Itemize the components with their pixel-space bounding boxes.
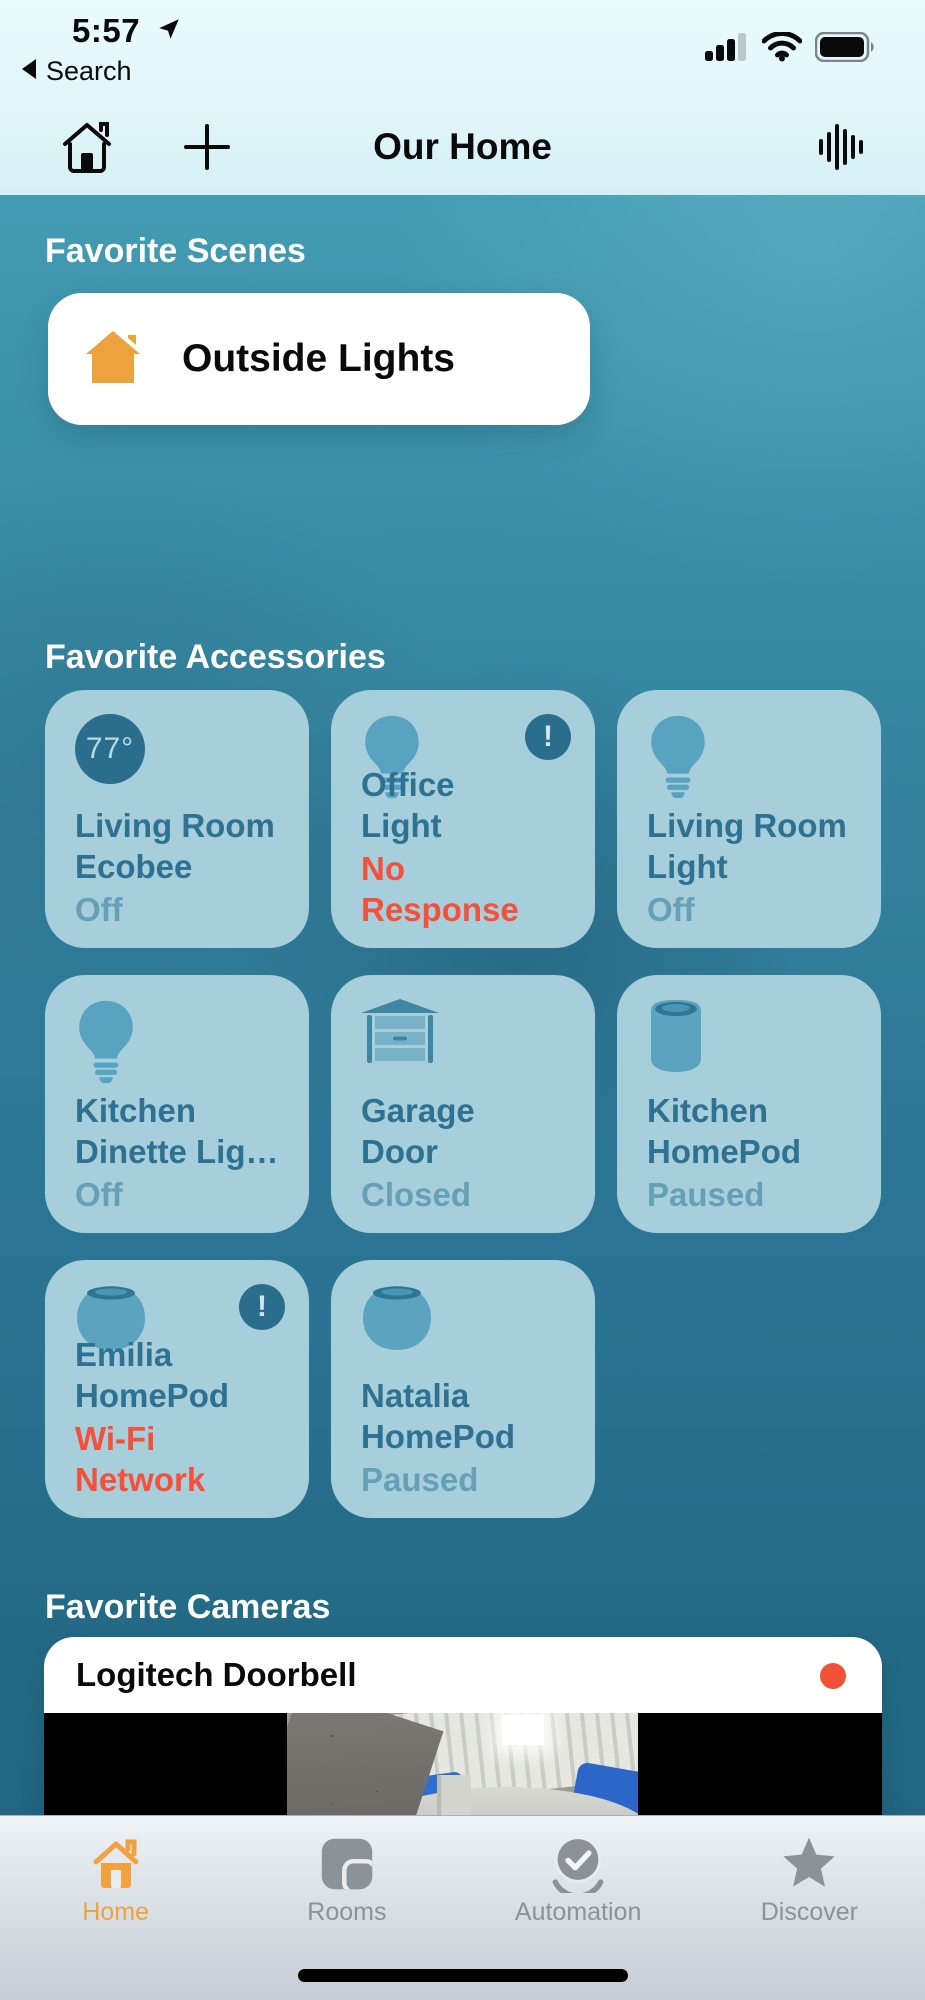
accessory-tile-living-room-light[interactable]: Living RoomLight Off: [617, 690, 881, 948]
home-app-screen: 5:57 Search: [0, 0, 925, 2000]
homepod-icon: [647, 1060, 705, 1077]
accessory-name: Living RoomEcobee: [75, 805, 283, 887]
camera-name: Logitech Doorbell: [76, 1656, 357, 1694]
accessory-name: KitchenHomePod: [647, 1090, 855, 1172]
accessory-status: Off: [75, 889, 283, 930]
accessory-status: Off: [647, 889, 855, 930]
status-time: 5:57: [72, 12, 140, 50]
home-tab-icon: [88, 1834, 144, 1894]
accessory-name: KitchenDinette Lig…: [75, 1090, 283, 1172]
accessory-tile-living-room-ecobee[interactable]: 77° Living RoomEcobee Off: [45, 690, 309, 948]
scene-house-icon: [84, 329, 142, 390]
accessory-tile-kitchen-dinette-light[interactable]: KitchenDinette Lig… Off: [45, 975, 309, 1233]
tab-label: Home: [82, 1898, 149, 1927]
camera-snapshot-image: [287, 1713, 638, 1815]
alert-badge: !: [525, 714, 571, 760]
favorite-accessories-heading: Favorite Accessories: [45, 638, 386, 677]
discover-tab-icon: [780, 1834, 838, 1894]
accessory-status: Wi-Fi Network: [75, 1418, 283, 1500]
accessory-status: Closed: [361, 1174, 569, 1215]
accessory-tile-garage-door[interactable]: GarageDoor Closed: [331, 975, 595, 1233]
camera-card-logitech-doorbell[interactable]: Logitech Doorbell: [44, 1637, 882, 1815]
header: Our Home: [0, 112, 925, 182]
tab-label: Automation: [515, 1898, 641, 1927]
tab-home[interactable]: Home: [0, 1816, 231, 2000]
back-chevron-icon: [22, 59, 38, 84]
accessory-name: NataliaHomePod: [361, 1375, 569, 1457]
status-icons: [705, 32, 877, 67]
alert-badge: !: [239, 1284, 285, 1330]
wifi-icon: [762, 32, 802, 67]
rooms-tab-icon: [320, 1834, 374, 1894]
favorite-cameras-heading: Favorite Cameras: [45, 1588, 330, 1627]
accessory-status: No Response: [361, 848, 569, 930]
top-bar: 5:57 Search: [0, 0, 925, 195]
accessory-status: Off: [75, 1174, 283, 1215]
thermostat-temperature-badge: 77°: [75, 714, 145, 784]
scene-name: Outside Lights: [182, 337, 455, 381]
accessory-tile-natalia-homepod[interactable]: NataliaHomePod Paused: [331, 1260, 595, 1518]
accessory-tile-office-light[interactable]: ! OfficeLight No Response: [331, 690, 595, 948]
battery-icon: [815, 32, 877, 67]
accessory-status: Paused: [361, 1459, 569, 1500]
camera-live-view[interactable]: [44, 1713, 882, 1815]
intercom-button[interactable]: [812, 120, 870, 178]
home-indicator[interactable]: [298, 1969, 628, 1982]
lightbulb-icon: [75, 1070, 137, 1087]
camera-card-header: Logitech Doorbell: [44, 1637, 882, 1713]
cellular-signal-icon: [705, 32, 749, 67]
tab-label: Discover: [761, 1898, 858, 1927]
tab-discover[interactable]: Discover: [694, 1816, 925, 2000]
homepod-mini-icon: [361, 1339, 433, 1356]
location-services-icon: [156, 16, 182, 47]
scene-outside-lights[interactable]: Outside Lights: [48, 293, 590, 425]
accessory-status: Paused: [647, 1174, 855, 1215]
recording-indicator-dot: [820, 1663, 846, 1689]
back-to-search-button[interactable]: Search: [22, 56, 132, 87]
favorite-scenes-heading: Favorite Scenes: [45, 232, 306, 271]
audio-waveform-icon: [818, 121, 864, 178]
accessory-name: EmiliaHomePod: [75, 1334, 283, 1416]
garage-door-icon: [361, 1052, 439, 1069]
accessory-tile-emilia-homepod[interactable]: ! EmiliaHomePod Wi-Fi Network: [45, 1260, 309, 1518]
accessory-name: Living RoomLight: [647, 805, 855, 887]
accessory-tile-kitchen-homepod[interactable]: KitchenHomePod Paused: [617, 975, 881, 1233]
tab-label: Rooms: [307, 1898, 386, 1927]
accessory-name: OfficeLight: [361, 764, 569, 846]
automation-tab-icon: [549, 1834, 607, 1894]
page-title: Our Home: [0, 126, 925, 168]
accessory-name: GarageDoor: [361, 1090, 569, 1172]
back-label: Search: [46, 56, 132, 87]
lightbulb-icon: [647, 785, 709, 802]
